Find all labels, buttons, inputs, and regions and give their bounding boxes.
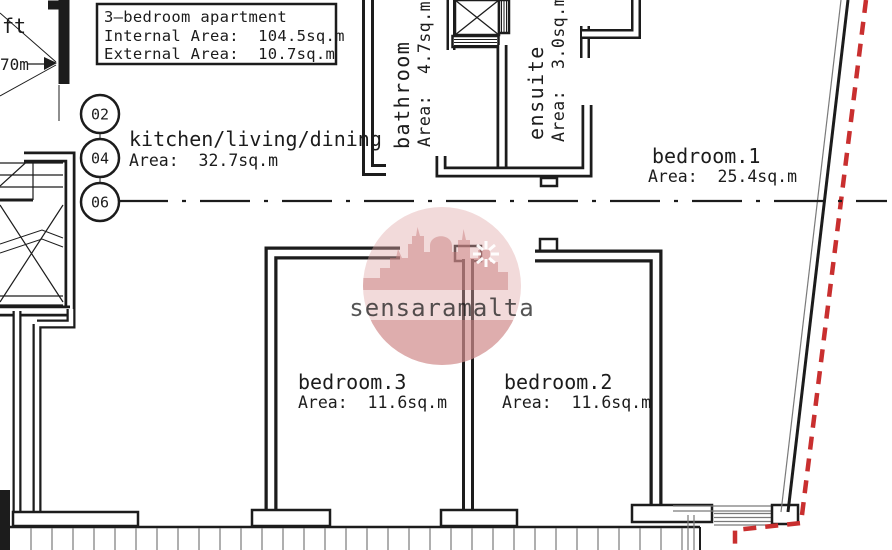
ensuite-label: ensuite <box>524 45 548 140</box>
stairwell <box>0 153 70 311</box>
title-line-1: 3—bedroom apartment <box>104 8 287 26</box>
marker-label-02: 02 <box>91 106 109 124</box>
wall-footing <box>441 510 517 526</box>
wall-stub <box>772 505 798 524</box>
bathroom-label: bathroom <box>390 41 414 149</box>
marker-label-04: 04 <box>91 150 109 168</box>
ensuite-area: Area: 3.0sq.m <box>549 0 568 142</box>
wall-pier <box>540 239 557 251</box>
floor-plan-page: ft 70m <box>0 0 892 550</box>
marker-label-06: 06 <box>91 194 109 212</box>
bathroom-area: Area: 4.7sq.m <box>415 1 434 147</box>
floor-plan-svg: ft 70m <box>0 0 892 550</box>
dimension-value: 70m <box>0 55 29 74</box>
kitchen-label: kitchen/living/dining <box>129 127 382 151</box>
level-markers: 02 04 06 <box>81 95 119 222</box>
bedroom3-area: Area: 11.6sq.m <box>298 393 447 412</box>
title-box: 3—bedroom apartment Internal Area: 104.5… <box>97 4 345 64</box>
title-line-2: Internal Area: 104.5sq.m <box>104 27 345 45</box>
kitchen-area: Area: 32.7sq.m <box>129 151 278 170</box>
watermark-text: sensaramalta <box>349 294 534 322</box>
lift-shaft <box>451 0 509 50</box>
bedroom1-label: bedroom.1 <box>652 144 760 168</box>
watermark-base-block <box>361 320 523 366</box>
bedroom1-area: Area: 25.4sq.m <box>648 167 797 186</box>
site-boundary <box>735 0 866 550</box>
boundary-wall-line <box>788 0 848 512</box>
wall-footing <box>252 510 330 526</box>
title-line-3: External Area: 10.7sq.m <box>104 45 335 63</box>
partial-room-label: ft <box>2 14 26 38</box>
wall-footing <box>632 505 712 522</box>
bedroom3-label: bedroom.3 <box>298 370 406 394</box>
wall-footing <box>13 512 138 526</box>
red-boundary-dashed-line <box>735 0 866 550</box>
watermark: sensaramalta <box>349 207 534 366</box>
door-stop <box>541 178 557 186</box>
bedroom2-label: bedroom.2 <box>504 370 612 394</box>
hall-walls <box>0 309 138 526</box>
bedroom2-area: Area: 11.6sq.m <box>502 393 651 412</box>
